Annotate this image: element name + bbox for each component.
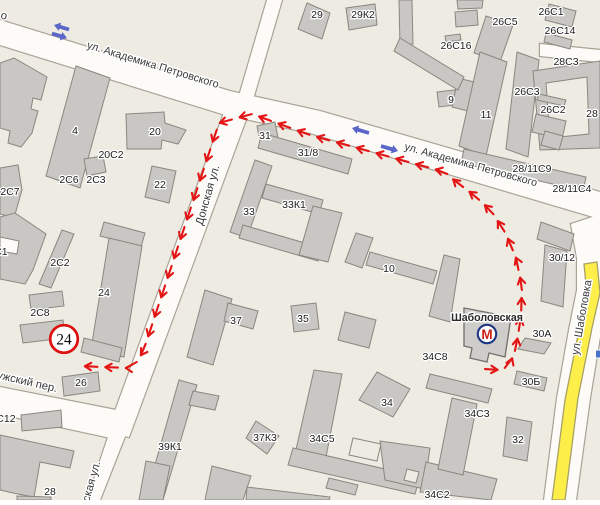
svg-text:20С2: 20С2 — [98, 149, 123, 161]
svg-text:30/12: 30/12 — [549, 252, 575, 264]
svg-text:35: 35 — [297, 313, 309, 325]
svg-text:37К3: 37К3 — [253, 432, 277, 444]
svg-text:2С6: 2С6 — [59, 174, 78, 186]
svg-text:34С5: 34С5 — [309, 433, 334, 445]
svg-text:2С8: 2С8 — [30, 307, 49, 319]
svg-text:34С3: 34С3 — [464, 408, 489, 420]
svg-text:2С2: 2С2 — [50, 257, 69, 269]
svg-text:31: 31 — [259, 130, 271, 142]
svg-text:32: 32 — [512, 434, 524, 446]
svg-text:33К1: 33К1 — [282, 199, 306, 211]
svg-text:31/8: 31/8 — [298, 147, 319, 159]
svg-text:4: 4 — [72, 125, 78, 137]
svg-text:26С3: 26С3 — [514, 86, 539, 98]
svg-text:26С2: 26С2 — [540, 104, 565, 116]
svg-text:10: 10 — [383, 263, 395, 275]
svg-text:28: 28 — [586, 108, 598, 120]
svg-text:20: 20 — [149, 126, 161, 138]
svg-text:28/11С4: 28/11С4 — [553, 183, 592, 195]
svg-text:22: 22 — [154, 179, 166, 191]
svg-text:Шаболовская: Шаболовская — [451, 312, 523, 324]
svg-text:2С7: 2С7 — [0, 186, 19, 198]
svg-text:26С1: 26С1 — [538, 6, 563, 18]
svg-text:2С3: 2С3 — [86, 174, 105, 186]
svg-text:2С12: 2С12 — [0, 413, 16, 425]
svg-text:34С2: 34С2 — [424, 489, 449, 500]
svg-text:28С3: 28С3 — [553, 56, 578, 68]
svg-text:24: 24 — [56, 332, 72, 349]
svg-text:26С16: 26С16 — [441, 40, 472, 52]
svg-text:30А: 30А — [533, 328, 552, 340]
svg-text:М: М — [481, 327, 492, 342]
svg-text:28/11С9: 28/11С9 — [513, 163, 552, 175]
svg-text:29К2: 29К2 — [351, 9, 375, 21]
svg-text:11: 11 — [481, 109, 492, 121]
svg-text:30Б: 30Б — [522, 376, 541, 388]
svg-text:26: 26 — [75, 377, 87, 389]
svg-text:29: 29 — [311, 9, 323, 21]
svg-text:34: 34 — [381, 397, 393, 409]
svg-text:2С1: 2С1 — [0, 246, 8, 258]
svg-text:37: 37 — [230, 315, 242, 327]
svg-text:9: 9 — [448, 94, 454, 106]
svg-text:39К1: 39К1 — [158, 441, 182, 453]
svg-text:33: 33 — [243, 206, 255, 218]
svg-text:28: 28 — [44, 486, 56, 498]
svg-text:34С8: 34С8 — [422, 351, 447, 363]
svg-text:24: 24 — [98, 287, 110, 299]
svg-text:26С5: 26С5 — [492, 16, 517, 28]
svg-text:26С14: 26С14 — [545, 25, 576, 37]
